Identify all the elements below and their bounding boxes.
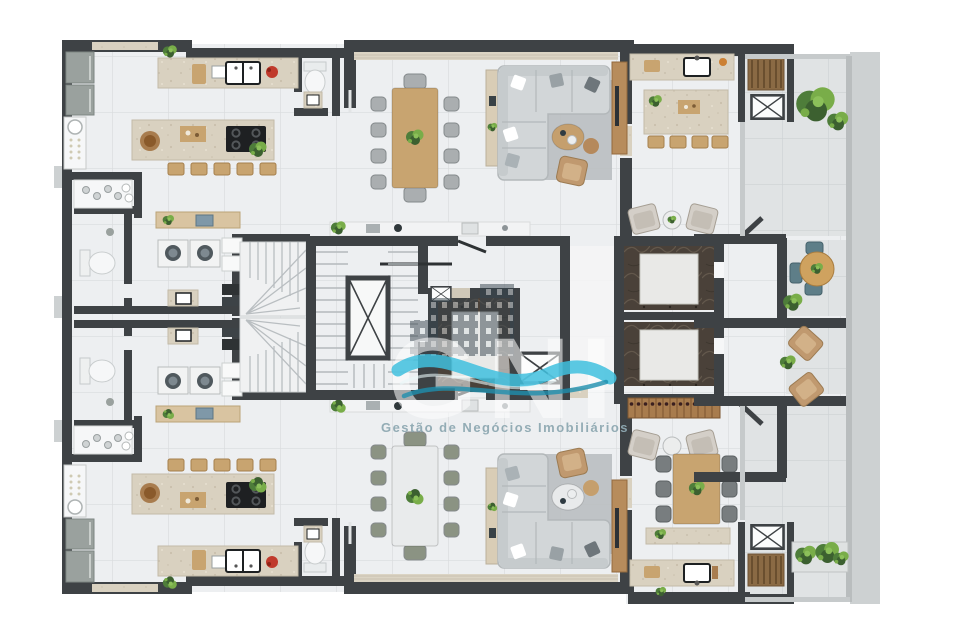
- toilet: [89, 252, 115, 274]
- glass-sliding-door: [740, 122, 745, 236]
- sink: [684, 564, 710, 582]
- tv: [615, 86, 619, 126]
- parapet-cap: [92, 42, 158, 50]
- window-band: [354, 52, 618, 60]
- watermark-tagline: Gestão de Negócios Imobiliários: [381, 420, 629, 435]
- planter-box: [792, 542, 849, 572]
- vanity-sink: [176, 293, 191, 304]
- cutting-board: [644, 566, 660, 578]
- sink: [684, 58, 710, 76]
- bottle: [712, 566, 718, 579]
- floor-plan-svg: GNI Gestão de Negócios Imobiliários: [0, 0, 959, 640]
- cutting-board: [644, 60, 660, 72]
- island-stools: [168, 163, 276, 175]
- elevator-door: [714, 262, 724, 278]
- basket: [222, 238, 242, 253]
- media-console: [612, 62, 627, 154]
- elevator-door: [714, 338, 724, 354]
- detergent-box: [196, 215, 213, 226]
- laundry-counter: [74, 180, 132, 208]
- living-area: [486, 62, 627, 187]
- x-cross-shaft-icon: [751, 95, 783, 118]
- x-cross-shaft-icon: [751, 525, 783, 548]
- red-flower: [266, 66, 278, 78]
- side-table: [663, 437, 681, 455]
- appliance-dark: [222, 284, 242, 295]
- grill: [748, 58, 784, 90]
- basin: [307, 95, 319, 105]
- basket: [222, 256, 242, 271]
- armchair: [556, 155, 589, 186]
- glass-rail: [846, 56, 852, 602]
- console-sideboard: [486, 70, 499, 166]
- floor-plan-render: GNI Gestão de Negócios Imobiliários: [0, 0, 959, 640]
- shower-head: [106, 228, 114, 236]
- glass-rail: [745, 597, 850, 602]
- hall-console: [330, 221, 530, 236]
- cutting-board: [192, 64, 206, 84]
- serving-board: [678, 100, 700, 114]
- appliance-dark: [222, 297, 242, 306]
- glass-sliding-door: [740, 406, 745, 520]
- grill: [748, 554, 784, 586]
- toilet: [305, 70, 325, 94]
- side-table: [583, 138, 599, 154]
- winder-stair: [240, 242, 306, 316]
- serving-board: [180, 126, 206, 142]
- glass-rail: [745, 54, 850, 59]
- decor: [719, 58, 727, 66]
